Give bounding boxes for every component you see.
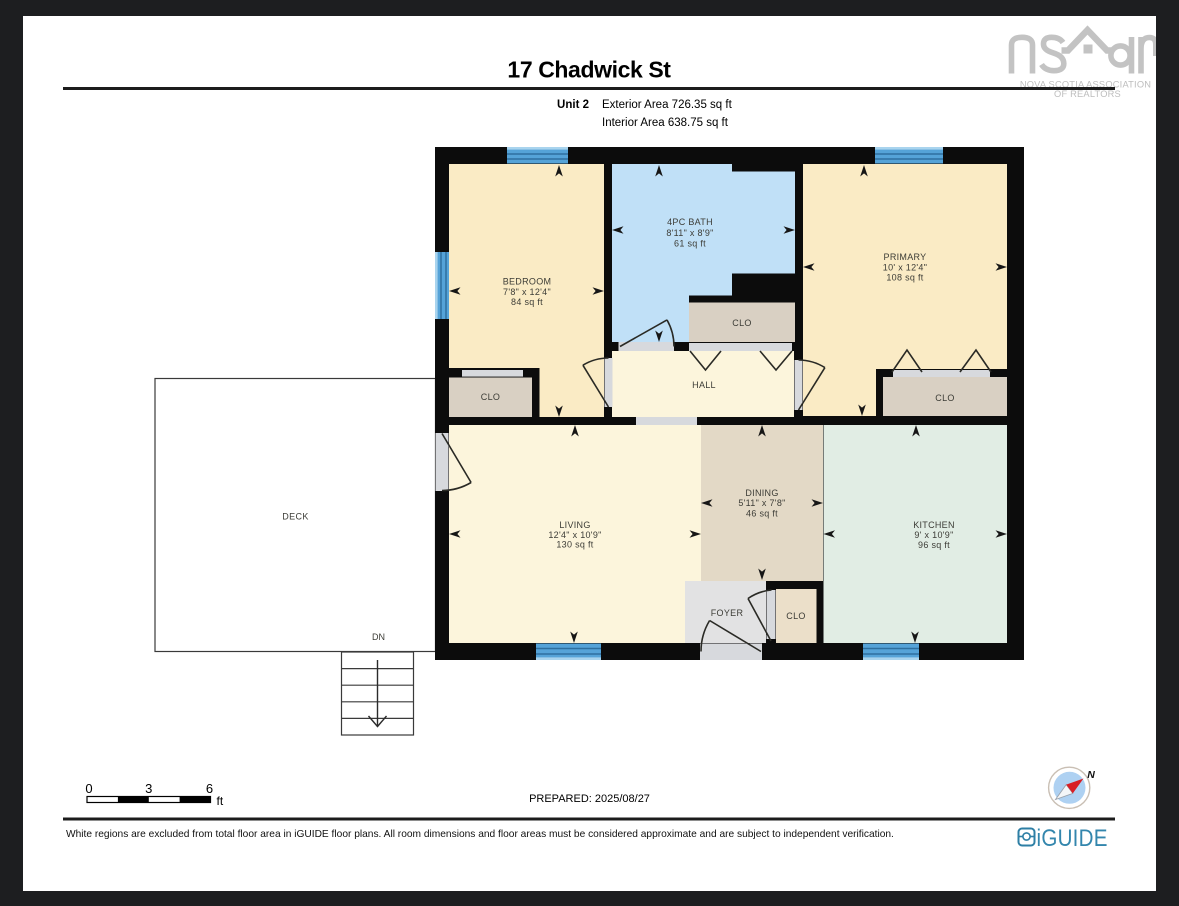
- svg-text:HALL: HALL: [692, 380, 716, 390]
- svg-text:5'11" x 7'8": 5'11" x 7'8": [738, 498, 785, 508]
- svg-text:N: N: [1087, 769, 1095, 781]
- svg-text:CLO: CLO: [935, 393, 954, 403]
- svg-text:FOYER: FOYER: [711, 608, 744, 618]
- svg-text:KITCHEN: KITCHEN: [913, 520, 955, 530]
- svg-text:DINING: DINING: [745, 488, 778, 498]
- svg-text:17 Chadwick St: 17 Chadwick St: [507, 57, 671, 83]
- svg-text:DECK: DECK: [282, 512, 309, 522]
- svg-text:CLO: CLO: [732, 318, 751, 328]
- svg-text:OF REALTORS: OF REALTORS: [1054, 89, 1121, 99]
- svg-text:PREPARED: 2025/08/27: PREPARED: 2025/08/27: [529, 793, 650, 805]
- svg-text:White regions are excluded fro: White regions are excluded from total fl…: [66, 829, 894, 840]
- svg-text:iGUIDE: iGUIDE: [1037, 824, 1108, 851]
- svg-text:6: 6: [206, 781, 213, 796]
- svg-text:CLO: CLO: [786, 611, 805, 621]
- svg-text:CLO: CLO: [481, 392, 500, 402]
- svg-text:4PC BATH: 4PC BATH: [667, 217, 713, 227]
- svg-text:DN: DN: [372, 632, 385, 642]
- svg-text:130 sq ft: 130 sq ft: [556, 540, 593, 550]
- svg-text:7'8" x 12'4": 7'8" x 12'4": [503, 287, 551, 297]
- svg-text:12'4" x 10'9": 12'4" x 10'9": [548, 530, 601, 540]
- svg-text:61 sq ft: 61 sq ft: [674, 239, 706, 249]
- svg-text:8'11" x 8'9": 8'11" x 8'9": [666, 228, 713, 238]
- svg-text:96 sq ft: 96 sq ft: [918, 540, 950, 550]
- svg-text:ft: ft: [217, 794, 224, 808]
- svg-text:Unit 2: Unit 2: [557, 99, 589, 111]
- svg-text:0: 0: [85, 781, 92, 796]
- svg-text:9' x 10'9": 9' x 10'9": [914, 530, 953, 540]
- svg-text:LIVING: LIVING: [559, 520, 590, 530]
- svg-text:PRIMARY: PRIMARY: [884, 252, 927, 262]
- svg-text:BEDROOM: BEDROOM: [503, 277, 552, 287]
- svg-text:3: 3: [145, 781, 152, 796]
- svg-text:46 sq ft: 46 sq ft: [746, 509, 778, 519]
- svg-text:10' x 12'4": 10' x 12'4": [883, 263, 927, 273]
- svg-text:108 sq ft: 108 sq ft: [886, 273, 923, 283]
- svg-text:84 sq ft: 84 sq ft: [511, 297, 543, 307]
- svg-text:Interior Area 638.75 sq ft: Interior Area 638.75 sq ft: [602, 117, 729, 129]
- svg-text:Exterior Area 726.35 sq ft: Exterior Area 726.35 sq ft: [602, 99, 733, 111]
